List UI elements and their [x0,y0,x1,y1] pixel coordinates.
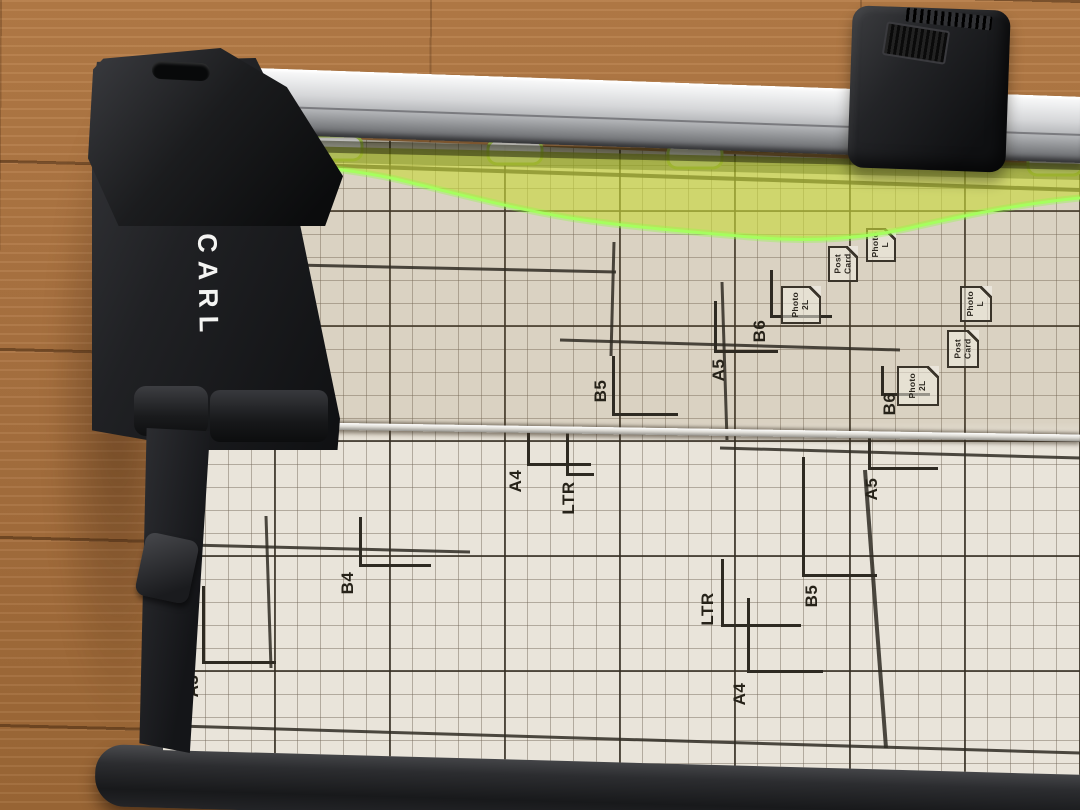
brand-logo: CARL [191,233,225,404]
endcap-handle-slot [152,60,211,81]
board-hinge-right [210,390,328,442]
photo-paper-trimmer: B5 A5 B6 B6 A3 [0,0,1080,810]
board-hinge-left [134,386,208,436]
